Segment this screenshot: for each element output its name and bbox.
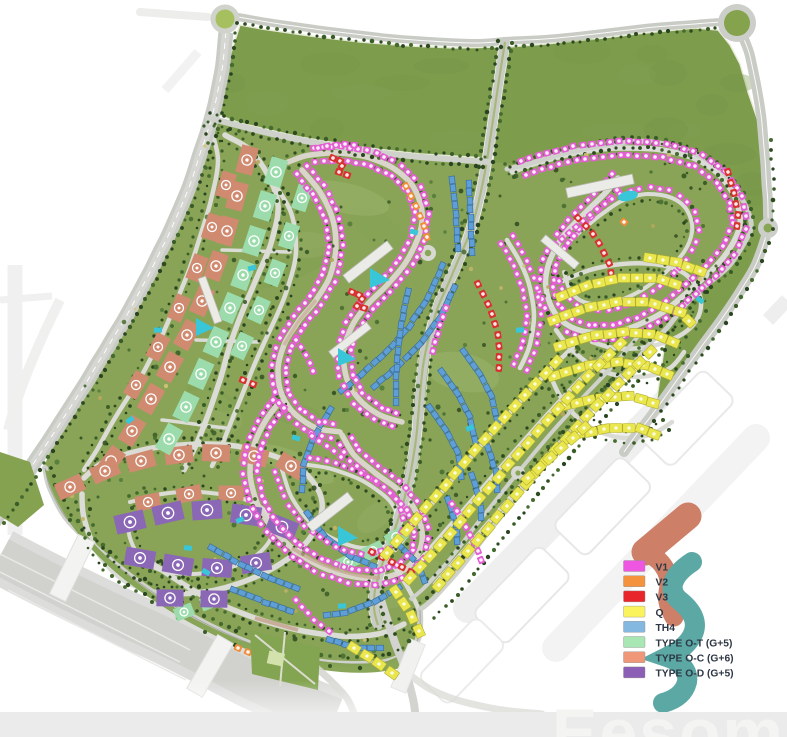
svg-text:V3: V3 — [656, 593, 669, 604]
svg-text:TYPE O-D (G+5): TYPE O-D (G+5) — [656, 669, 734, 680]
svg-text:V1: V1 — [656, 562, 669, 573]
svg-text:V2: V2 — [656, 578, 669, 589]
svg-text:TH4: TH4 — [656, 623, 676, 634]
svg-text:TYPE O-T (G+5): TYPE O-T (G+5) — [656, 638, 733, 649]
svg-text:Q: Q — [656, 608, 664, 619]
svg-text:TYPE O-C (G+6): TYPE O-C (G+6) — [656, 654, 734, 665]
svg-text:Eesom: Eesom — [552, 695, 785, 737]
